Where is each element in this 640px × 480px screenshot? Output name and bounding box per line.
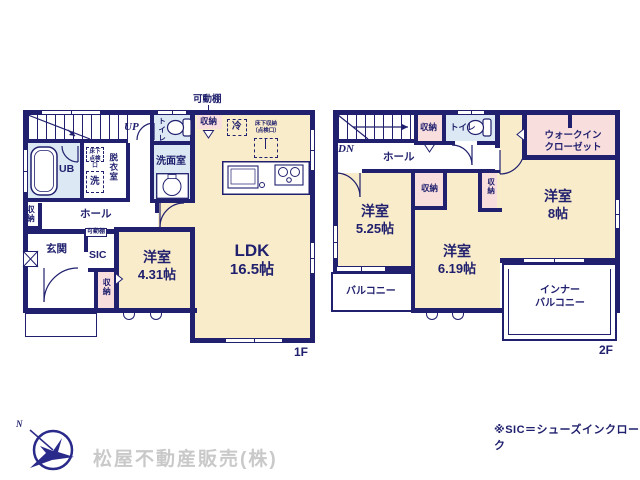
stairs-up-arrow (28, 115, 128, 139)
sic-note: ※SIC＝シューズインクローク (494, 421, 640, 453)
stairs-up-label: UP (124, 121, 139, 134)
wall-segment (150, 145, 154, 203)
toilet-door-arc-2f (452, 145, 472, 165)
shutter-half-disc (150, 313, 162, 320)
shutter-half-disc (452, 313, 464, 320)
ldk-label: LDK 16.5帖 (212, 240, 292, 280)
label-tick (208, 105, 209, 111)
stairs-down-label: DN (338, 143, 354, 156)
wall-segment (94, 268, 98, 313)
window (458, 110, 484, 115)
storage-label-a: 収納 (421, 184, 438, 194)
wall-segment (80, 143, 84, 198)
floor2-tag: 2F (599, 344, 613, 358)
underfloor-storage-l2: （点検口） (249, 128, 283, 135)
toilet-label-1f: トイレ (157, 117, 166, 143)
wall-segment (126, 143, 130, 202)
wall-segment (478, 208, 502, 212)
window (615, 200, 620, 228)
window (310, 130, 315, 170)
bath-door-arc (62, 146, 78, 162)
washbasin-icon (156, 173, 189, 199)
bedroom-619-label: 洋室 6.19帖 (424, 243, 490, 277)
hatch-mark (265, 138, 266, 149)
compass-icon (22, 422, 82, 476)
storage-label-top: 収納 (200, 117, 217, 127)
bedroom8-name: 洋室 (527, 188, 589, 206)
hall-label-1f: ホール (80, 208, 112, 220)
sic-label: SIC (89, 249, 107, 261)
bedroom525-name: 洋室 (343, 203, 407, 221)
bedroom525-size: 5.25帖 (343, 221, 407, 237)
ldk-door-arc (160, 203, 184, 227)
storage-label-genkan: 収納 (102, 278, 111, 296)
shutter-half-disc (123, 313, 135, 320)
underfloor-storage-hatch (254, 138, 278, 158)
entrance-porch (25, 313, 97, 337)
ldk-size: 16.5帖 (212, 261, 292, 280)
stairs-down-arrow (338, 115, 415, 139)
kitchen-counter (222, 161, 310, 195)
floor-inspection-l2: 点検口 (87, 156, 103, 170)
floor1-tag: 1F (294, 346, 308, 360)
bedroom8-door-arc (500, 150, 524, 174)
bedroom525-door-arc (336, 173, 360, 197)
shutter-half-disc (426, 313, 438, 320)
lattice-window-icon (23, 251, 38, 267)
wall-segment (443, 173, 447, 210)
toilet-door-arc (137, 123, 154, 140)
ub-label: UB (59, 163, 74, 175)
genkan-label: 玄関 (46, 243, 67, 255)
wall-segment (414, 110, 418, 145)
entrance-door-arc (44, 268, 78, 302)
wall-segment (155, 203, 159, 213)
floor-inspection-l1: 床下 (87, 149, 103, 156)
wall-segment (615, 263, 620, 313)
floor-inspection-label: 床下 点検口 (87, 149, 103, 170)
inner-balcony-label: インナー バルコニー (531, 285, 589, 310)
window (333, 226, 338, 258)
bathtub-icon (30, 146, 58, 196)
wic-l1: ウォークイン (540, 130, 606, 142)
wall-segment (522, 155, 620, 160)
wic-door-marker (516, 128, 525, 141)
hall-label-2f: ホール (383, 151, 415, 163)
window (310, 243, 315, 273)
bedroom619-name: 洋室 (424, 243, 490, 261)
bedroom-name: 洋室 (125, 249, 189, 267)
window (158, 110, 186, 115)
underfloor-storage-l1: 床下収納 (249, 121, 283, 128)
inner-balcony-l2: バルコニー (531, 298, 589, 311)
floorplan-canvas: 可動棚 UP LDK 16.5帖 洋室 4.31帖 玄関 SIC 可動棚 ホール… (0, 0, 640, 480)
bedroom-size: 4.31帖 (125, 267, 189, 283)
washer-label: 洗 (90, 177, 100, 188)
shelf-note-sic: 可動棚 (85, 228, 107, 237)
wall-segment (411, 206, 447, 210)
wall-segment (190, 227, 195, 343)
bedroom-door-marker (115, 273, 123, 285)
compass-north-label: N (16, 419, 23, 429)
bedroom-431-label: 洋室 4.31帖 (125, 249, 189, 283)
fridge-label: 冷 (232, 122, 242, 133)
wall-segment (568, 110, 572, 128)
bedroom619-size: 6.19帖 (424, 261, 490, 277)
toilet-icon (166, 117, 192, 139)
storage-label-hall: 収納 (26, 205, 35, 223)
room-ldk (195, 115, 310, 338)
toilet-label-2f: トイレ (450, 123, 476, 133)
ldk-name: LDK (212, 240, 292, 261)
company-name: 松屋不動産販売(株) (93, 444, 278, 471)
dressing-label: 脱衣室 (108, 153, 118, 182)
bedroom8-size: 8帖 (527, 206, 589, 222)
window (23, 150, 28, 192)
wall-segment (88, 268, 119, 272)
closet-door-marker (203, 130, 214, 139)
underfloor-storage-label: 床下収納 （点検口） (249, 121, 283, 135)
bedroom-525-label: 洋室 5.25帖 (343, 203, 407, 237)
washroom-label: 洗面室 (156, 156, 186, 168)
storage-label-b: 収納 (486, 178, 495, 195)
closet-door-marker-2f (424, 144, 435, 153)
wall-segment (114, 227, 190, 232)
wall-segment (28, 139, 128, 143)
inner-balcony-l1: インナー (531, 285, 589, 298)
wall-segment (442, 110, 446, 145)
window (42, 110, 100, 115)
bedroom-8-label: 洋室 8帖 (527, 188, 589, 222)
storage-label-hall-2f: 収納 (420, 123, 437, 133)
balcony-label: バルコニー (346, 286, 396, 298)
wall-segment (478, 173, 482, 212)
wic-label: ウォークイン クローゼット (540, 130, 606, 154)
window (226, 338, 282, 343)
wic-l2: クローゼット (540, 142, 606, 154)
wall-segment (23, 198, 130, 202)
